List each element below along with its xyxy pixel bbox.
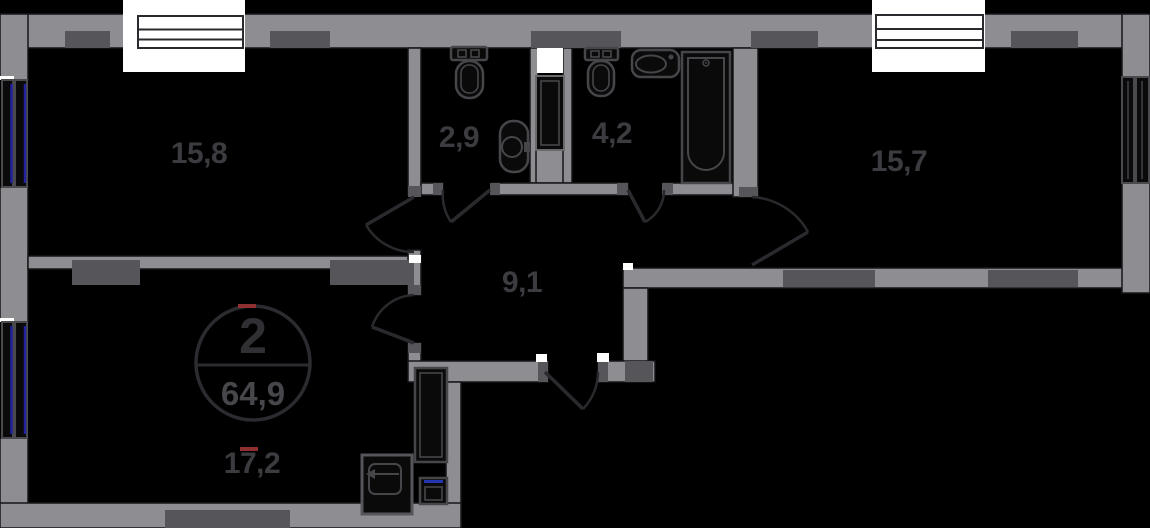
toilet-icon-bathroom-small (451, 47, 487, 98)
kitchen-counter-icon (415, 368, 447, 462)
area-label-living-room-2: 15,7 (871, 145, 927, 178)
bathtub-icon (682, 52, 730, 183)
floor-plan: 2 64,9 15,8 2,9 4,2 15,7 9,1 17,2 (0, 0, 1150, 528)
kitchen-sink-icon (362, 455, 412, 514)
sink-icon-bathroom-large (632, 50, 679, 77)
area-label-hallway: 9,1 (502, 266, 542, 299)
stove-icon (420, 478, 447, 504)
apartment-total-area: 64,9 (221, 375, 285, 412)
sink-icon-bathroom-small (500, 121, 530, 172)
room-living-room-2 (758, 48, 1122, 268)
area-label-bathroom-large: 4,2 (592, 117, 632, 150)
ventilation-shaft (536, 48, 564, 150)
apartment-number: 2 (239, 308, 267, 364)
window-right (1122, 77, 1150, 183)
toilet-icon-bathroom-large (585, 48, 618, 96)
window-left-upper (0, 80, 28, 187)
area-label-living-room-1: 15,8 (171, 137, 227, 170)
area-label-bathroom-small: 2,9 (439, 121, 479, 154)
window-left-lower (0, 322, 28, 438)
area-label-kitchen-living: 17,2 (224, 447, 280, 480)
